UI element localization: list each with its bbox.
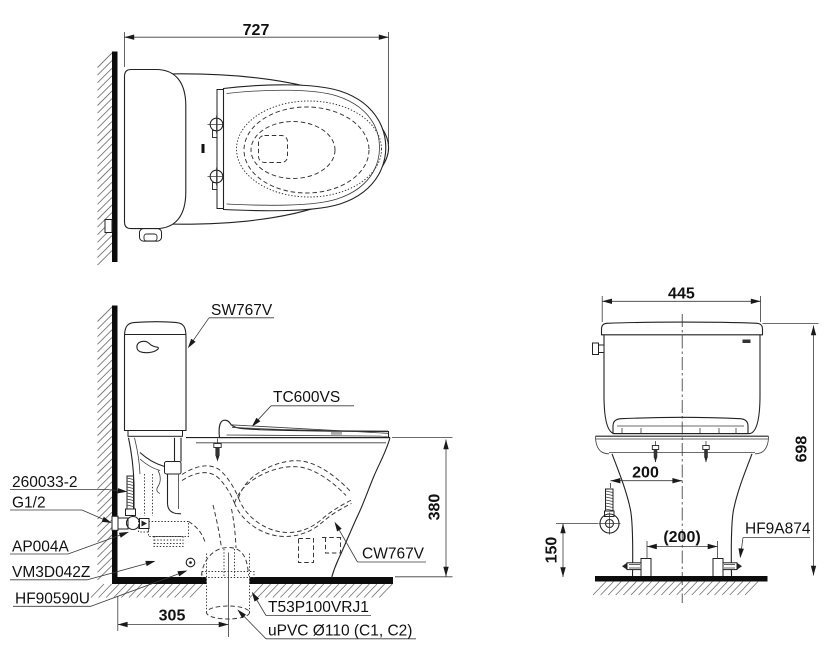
svg-text:150: 150 [544,537,561,564]
svg-text:(200): (200) [663,529,700,546]
svg-text:TC600VS: TC600VS [273,389,340,406]
svg-text:260033-2: 260033-2 [12,474,78,491]
svg-text:445: 445 [668,286,695,303]
svg-text:305: 305 [159,608,186,625]
svg-text:T53P100VRJ1: T53P100VRJ1 [268,599,369,616]
svg-text:HF9A874: HF9A874 [745,521,811,538]
svg-text:G1/2: G1/2 [12,495,46,512]
svg-text:VM3D042Z: VM3D042Z [12,564,90,581]
svg-text:AP004A: AP004A [12,539,70,556]
svg-text:380: 380 [427,494,444,521]
svg-text:200: 200 [632,465,659,482]
svg-text:uPVC Ø110 (C1, C2): uPVC Ø110 (C1, C2) [268,623,412,640]
svg-text:698: 698 [794,436,811,463]
svg-text:727: 727 [243,22,270,39]
svg-text:CW767V: CW767V [362,546,425,563]
svg-text:SW767V: SW767V [211,302,273,319]
svg-text:HF90590U: HF90590U [15,591,90,608]
